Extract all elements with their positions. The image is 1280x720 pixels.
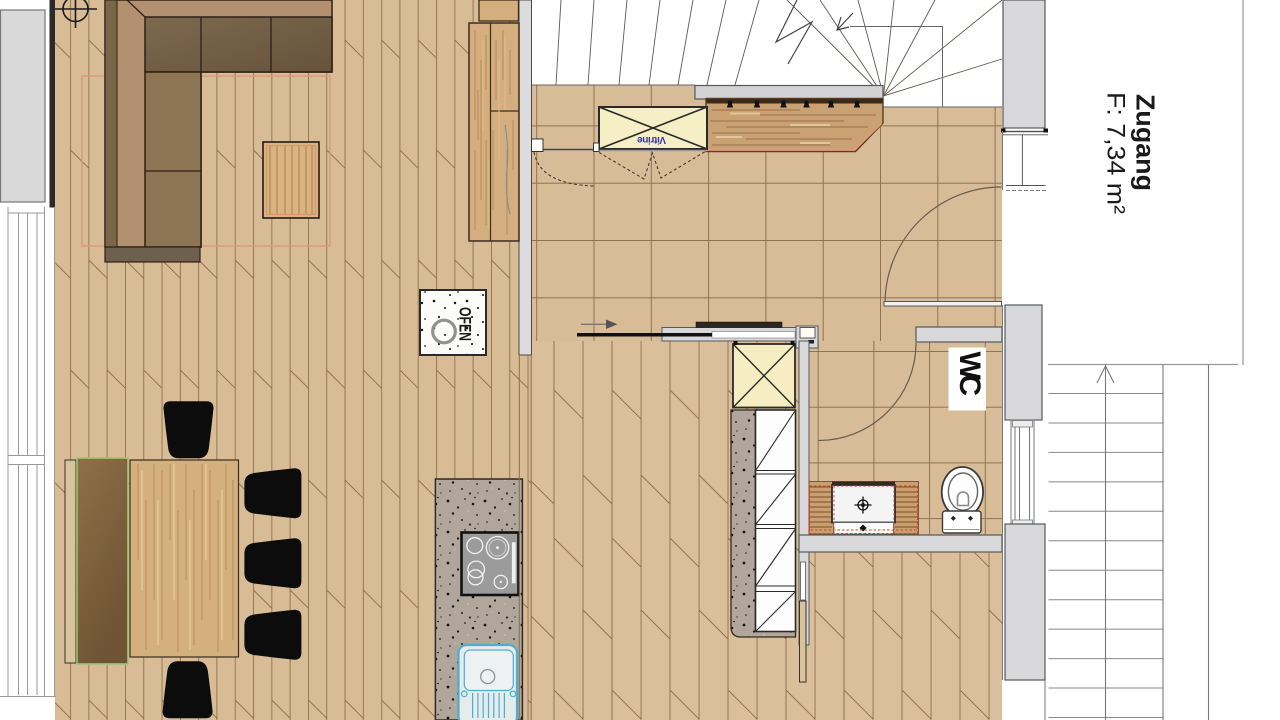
svg-text:F: 7,34 m²: F: 7,34 m² (1102, 92, 1130, 214)
svg-text:WC: WC (953, 352, 986, 397)
svg-text:Zugang: Zugang (1131, 94, 1161, 191)
svg-text:Vitrine: Vitrine (637, 134, 666, 145)
svg-text:OFEN: OFEN (456, 307, 474, 341)
